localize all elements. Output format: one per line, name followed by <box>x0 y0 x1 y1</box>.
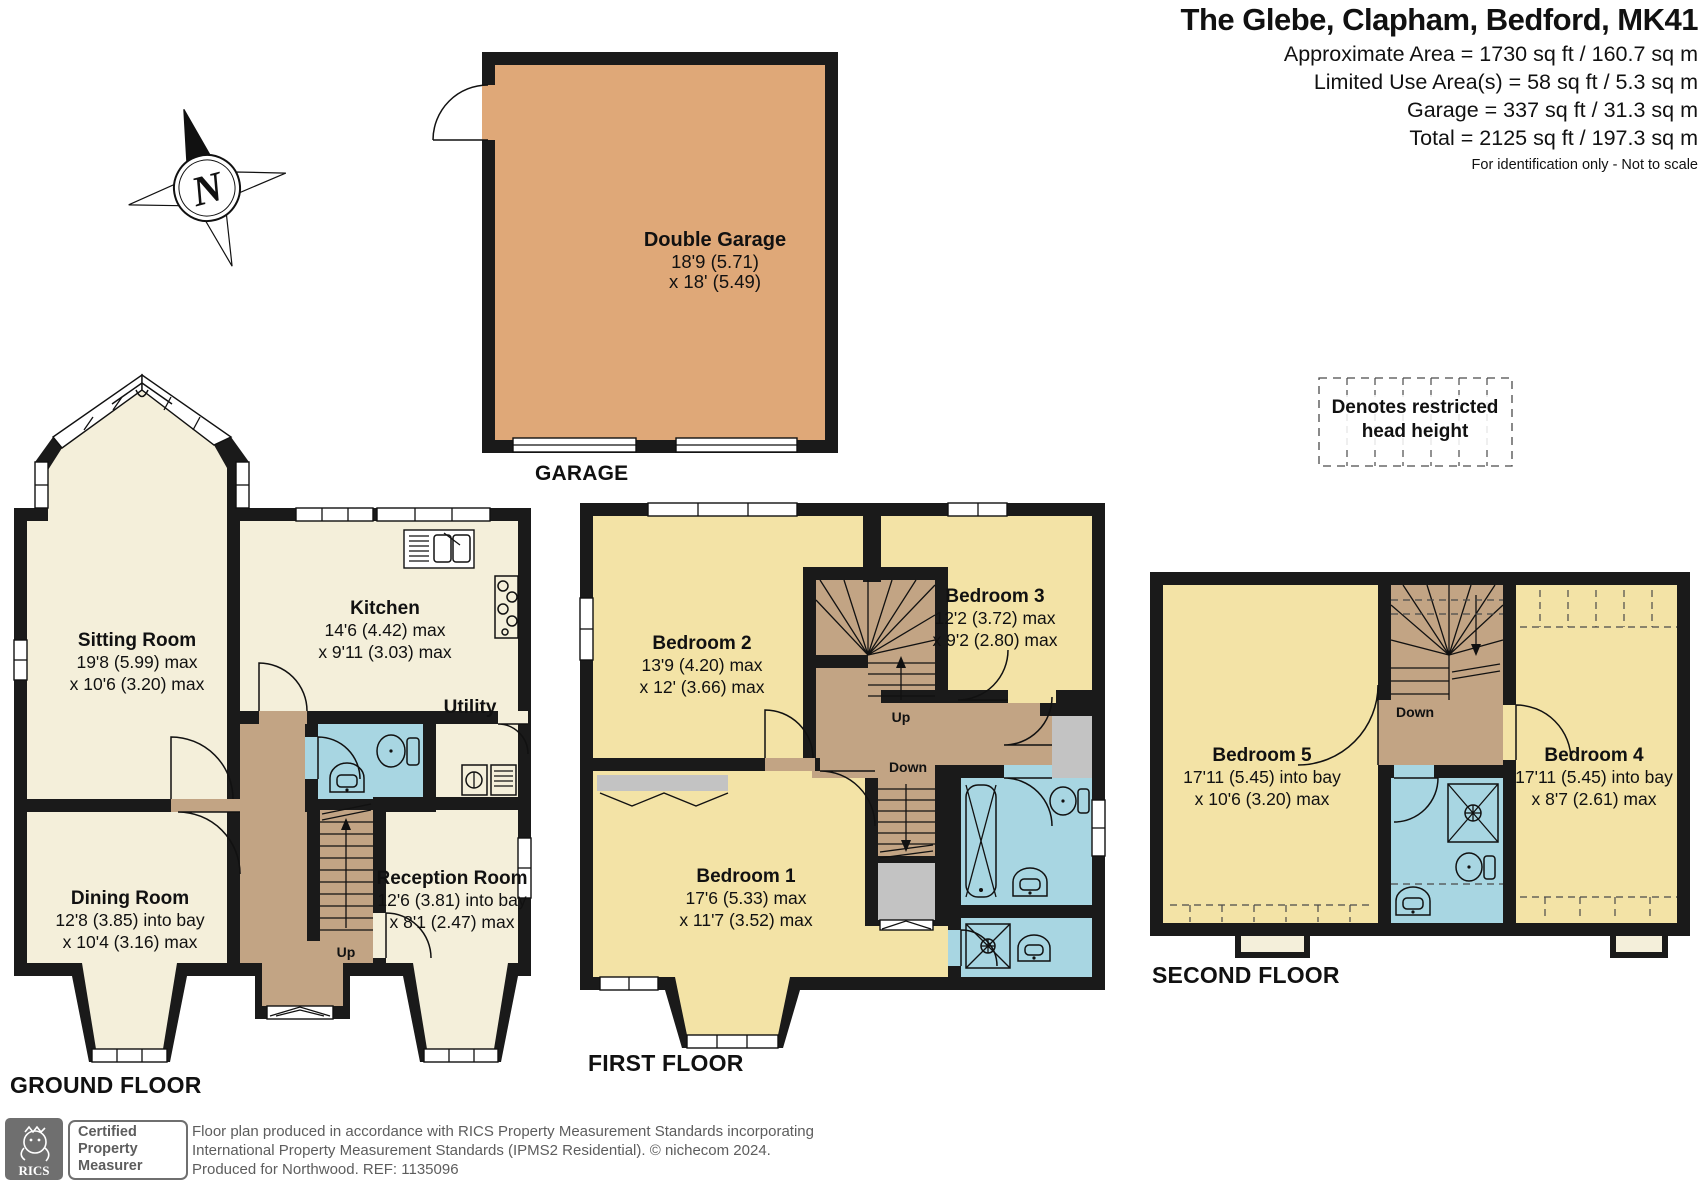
staircase-winder <box>1391 585 1503 700</box>
footer-line-3: Produced for Northwood. REF: 1135096 <box>192 1160 814 1179</box>
stairs-up-label: Up <box>337 944 356 960</box>
area-line-approximate: Approximate Area = 1730 sq ft / 160.7 sq… <box>1181 40 1698 68</box>
svg-text:x 10'4 (3.16) max: x 10'4 (3.16) max <box>63 932 198 952</box>
room-sitting-room-label: Sitting Room 19'8 (5.99) max x 10'6 (3.2… <box>70 630 205 694</box>
first-floor-plan: Up Down <box>580 503 1105 1048</box>
legend-line-1: Denotes restricted <box>1332 397 1499 418</box>
footer-line-2: International Property Measurement Stand… <box>192 1141 814 1160</box>
svg-text:RICS: RICS <box>18 1163 49 1178</box>
room-shower-room <box>1391 778 1503 923</box>
certification-badge: Certified Property Measurer <box>68 1120 188 1180</box>
front-door <box>267 1006 333 1019</box>
room-bedroom-1-label: Bedroom 1 17'6 (5.33) max x 11'7 (3.52) … <box>679 866 813 930</box>
room-utility-label: Utility <box>444 697 497 718</box>
garage-floor-label: GARAGE <box>535 462 628 486</box>
room-dining-room-label: Dining Room 12'8 (3.85) into bay x 10'4 … <box>55 888 205 952</box>
cupboard <box>1052 716 1092 778</box>
svg-text:Bedroom 4: Bedroom 4 <box>1544 745 1644 766</box>
svg-text:18'9 (5.71): 18'9 (5.71) <box>671 251 759 272</box>
badge-line: Certified <box>78 1124 186 1141</box>
svg-text:19'8 (5.99) max: 19'8 (5.99) max <box>76 652 197 672</box>
page-title: The Glebe, Clapham, Bedford, MK41 <box>1181 0 1698 40</box>
svg-text:Double Garage: Double Garage <box>644 229 786 251</box>
svg-text:x 12' (3.66) max: x 12' (3.66) max <box>640 677 765 697</box>
rics-logo: RICS <box>5 1118 63 1180</box>
second-floor-label: SECOND FLOOR <box>1152 962 1340 989</box>
svg-text:x 8'7 (2.61) max: x 8'7 (2.61) max <box>1532 789 1657 809</box>
svg-text:14'6 (4.42) max: 14'6 (4.42) max <box>324 620 445 640</box>
floorplan-canvas: N Denotes restricted head height <box>0 0 1704 1183</box>
room-bedroom-3-label: Bedroom 3 12'2 (3.72) max x 9'2 (2.80) m… <box>933 586 1058 650</box>
svg-text:x 9'2 (2.80) max: x 9'2 (2.80) max <box>933 630 1058 650</box>
svg-text:Bedroom 1: Bedroom 1 <box>696 866 796 887</box>
area-line-garage: Garage = 337 sq ft / 31.3 sq m <box>1181 96 1698 124</box>
ground-floor-label: GROUND FLOOR <box>10 1072 202 1099</box>
svg-text:Dining Room: Dining Room <box>71 888 189 909</box>
stairs-down-label: Down <box>1396 704 1434 720</box>
door-arc <box>433 85 488 140</box>
first-floor-label: FIRST FLOOR <box>588 1050 744 1077</box>
svg-text:12'6 (3.81) into bay: 12'6 (3.81) into bay <box>377 890 527 910</box>
svg-text:x 18' (5.49): x 18' (5.49) <box>669 271 761 292</box>
footer-disclaimer: Floor plan produced in accordance with R… <box>192 1122 814 1179</box>
svg-text:17'11 (5.45) into bay: 17'11 (5.45) into bay <box>1515 767 1673 787</box>
area-line-total: Total = 2125 sq ft / 197.3 sq m <box>1181 124 1698 152</box>
badge-line: Measurer <box>78 1158 186 1175</box>
room-bedroom-2-label: Bedroom 2 13'9 (4.20) max x 12' (3.66) m… <box>640 633 765 697</box>
svg-text:Bedroom 2: Bedroom 2 <box>652 633 751 654</box>
second-floor-plan: Down <box>1150 572 1690 958</box>
header: The Glebe, Clapham, Bedford, MK41 Approx… <box>1181 0 1698 173</box>
rics-lion-icon: RICS <box>5 1118 63 1180</box>
badge-line: Property <box>78 1141 186 1158</box>
floorplan-page: N Denotes restricted head height <box>0 0 1704 1183</box>
svg-text:x 10'6 (3.20) max: x 10'6 (3.20) max <box>70 674 205 694</box>
kitchen-sink-icon <box>404 530 474 568</box>
svg-text:Bedroom 3: Bedroom 3 <box>945 586 1044 607</box>
svg-text:x 10'6 (3.20) max: x 10'6 (3.20) max <box>1195 789 1330 809</box>
closet <box>878 863 935 930</box>
svg-text:12'2 (3.72) max: 12'2 (3.72) max <box>934 608 1055 628</box>
room-bedroom-2 <box>593 516 863 567</box>
svg-text:Bedroom 5: Bedroom 5 <box>1212 745 1312 766</box>
staircase-up: Up <box>320 804 373 960</box>
legend-line-2: head height <box>1362 421 1469 442</box>
stairs-down-label: Down <box>889 759 927 775</box>
restricted-head-height-legend: Denotes restricted head height <box>1319 378 1512 466</box>
garage-door <box>676 438 797 452</box>
disclaimer-text: For identification only - Not to scale <box>1181 157 1698 173</box>
garage-plan: Double Garage 18'9 (5.71) x 18' (5.49) <box>433 52 838 453</box>
footer-line-1: Floor plan produced in accordance with R… <box>192 1122 814 1141</box>
svg-text:x 8'1 (2.47) max: x 8'1 (2.47) max <box>390 912 515 932</box>
svg-text:13'9 (4.20) max: 13'9 (4.20) max <box>641 655 762 675</box>
ground-floor-plan: Up <box>14 375 531 1062</box>
garage-side-door-opening <box>482 85 495 140</box>
svg-text:17'6 (5.33) max: 17'6 (5.33) max <box>685 888 806 908</box>
svg-text:Reception Room: Reception Room <box>377 868 528 889</box>
room-reception-room-label: Reception Room 12'6 (3.81) into bay x 8'… <box>377 868 528 932</box>
area-line-limited-use: Limited Use Area(s) = 58 sq ft / 5.3 sq … <box>1181 68 1698 96</box>
svg-text:Sitting Room: Sitting Room <box>78 630 196 651</box>
compass-north-icon: N <box>109 88 306 288</box>
svg-text:x 11'7 (3.52) max: x 11'7 (3.52) max <box>679 910 813 930</box>
svg-text:Kitchen: Kitchen <box>350 598 420 619</box>
stairs-up-label: Up <box>892 709 911 725</box>
svg-text:17'11 (5.45) into bay: 17'11 (5.45) into bay <box>1183 767 1341 787</box>
garage-door <box>513 438 636 452</box>
svg-text:x 9'11 (3.03) max: x 9'11 (3.03) max <box>318 642 452 662</box>
svg-text:12'8 (3.85) into bay: 12'8 (3.85) into bay <box>55 910 205 930</box>
